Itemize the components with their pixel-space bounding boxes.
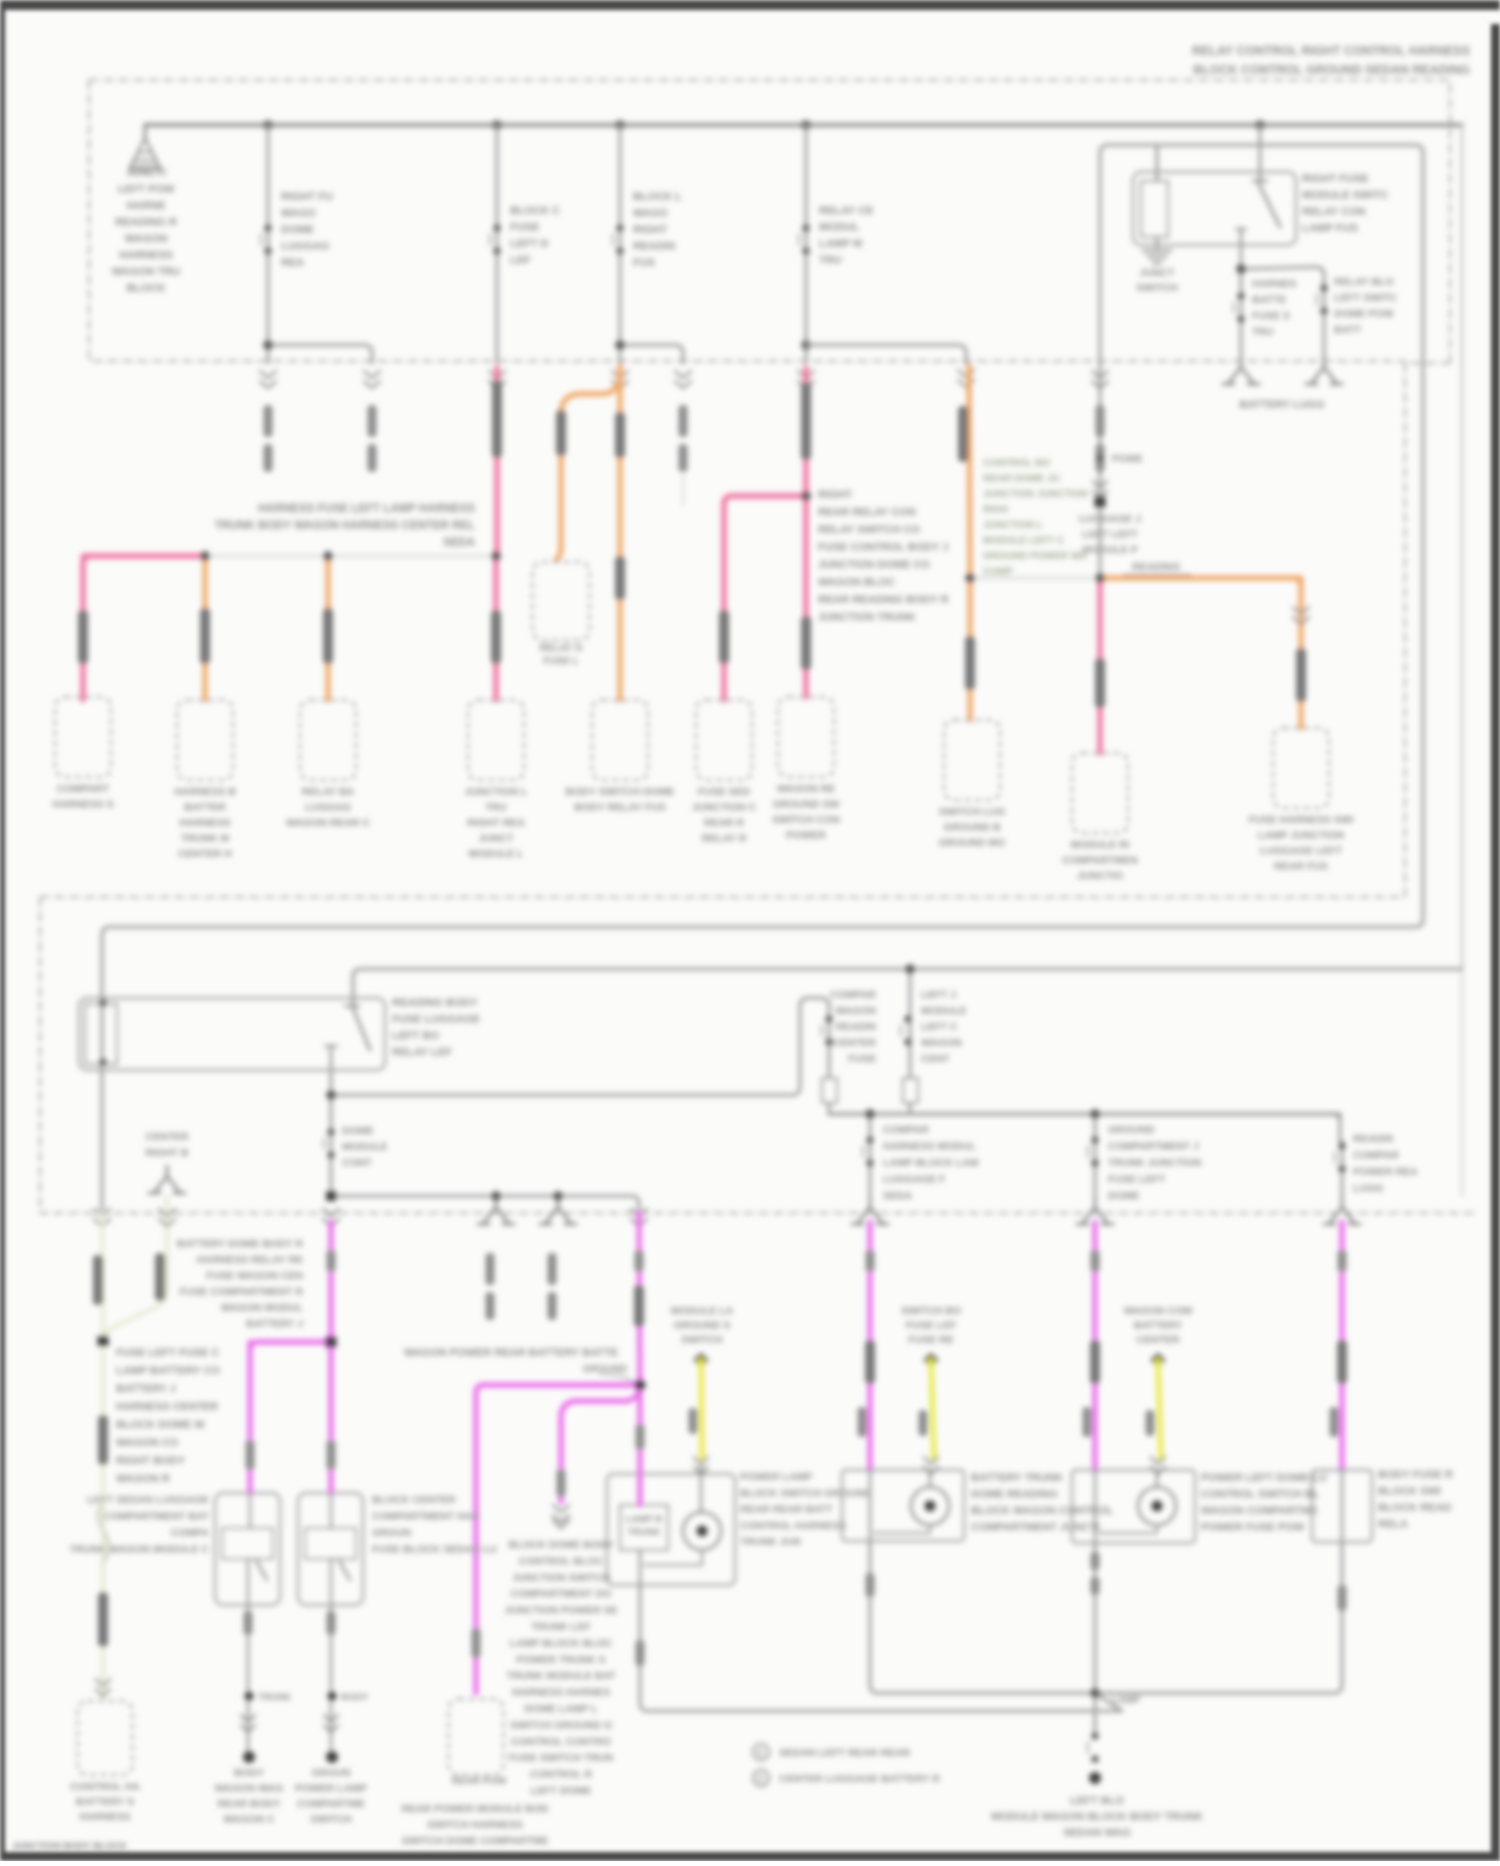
svg-text:COMPAR: COMPAR — [1353, 1150, 1399, 1162]
svg-text:COMPARTMENT BAT: COMPARTMENT BAT — [103, 1511, 209, 1523]
svg-text:LAMP B: LAMP B — [626, 1514, 662, 1525]
svg-text:HARNES: HARNES — [1252, 278, 1296, 290]
svg-text:MODULE RI: MODULE RI — [1071, 839, 1130, 851]
svg-text:SEDAN WAG: SEDAN WAG — [1063, 1827, 1131, 1839]
svg-text:BATTE: BATTE — [1252, 294, 1286, 306]
svg-text:SWITCH BO: SWITCH BO — [901, 1305, 961, 1317]
svg-text:JUNCTION L: JUNCTION L — [983, 520, 1043, 531]
svg-text:LAMP BATTERY CO: LAMP BATTERY CO — [116, 1365, 221, 1377]
svg-text:TRUNK JUNCTION: TRUNK JUNCTION — [1108, 1157, 1201, 1169]
svg-text:COMPA: COMPA — [171, 1527, 210, 1539]
svg-text:CENT: CENT — [921, 1053, 950, 1065]
svg-text:HARNESS HARNES: HARNESS HARNES — [512, 1687, 611, 1699]
svg-text:LEFT LEFT: LEFT LEFT — [1082, 529, 1138, 541]
svg-text:REAR POW: REAR POW — [452, 1776, 508, 1787]
svg-text:RELAY CON: RELAY CON — [1302, 206, 1366, 218]
svg-text:CONTROL HA: CONTROL HA — [70, 1781, 140, 1793]
svg-text:BATTERY J: BATTERY J — [246, 1318, 303, 1330]
svg-text:BODY RELAY FUS: BODY RELAY FUS — [574, 802, 665, 814]
svg-text:REAR READING BODY R: REAR READING BODY R — [818, 594, 949, 606]
svg-text:REAR REAR BATT: REAR REAR BATT — [740, 1504, 833, 1516]
svg-text:BATTERY TRUNK: BATTERY TRUNK — [971, 1472, 1063, 1484]
svg-text:SWITCH DOME COMPARTME: SWITCH DOME COMPARTME — [402, 1835, 549, 1847]
svg-text:WAGON: WAGON — [125, 233, 168, 245]
svg-text:HARNESS CENTER: HARNESS CENTER — [116, 1401, 218, 1413]
svg-text:RELAY LEF: RELAY LEF — [392, 1047, 452, 1059]
svg-text:HARNESS: HARNESS — [119, 250, 173, 262]
svg-text:BLOCK SWI: BLOCK SWI — [1378, 1486, 1441, 1498]
svg-text:COMP: COMP — [983, 567, 1013, 578]
svg-text:FUSE SWITCH TRUN: FUSE SWITCH TRUN — [509, 1752, 613, 1764]
svg-text:JUNCTIO: JUNCTIO — [1077, 870, 1123, 882]
svg-text:SWITCH CON: SWITCH CON — [772, 814, 840, 826]
svg-text:LEFT BLO: LEFT BLO — [1070, 1795, 1124, 1807]
svg-text:HARNESS MODUL: HARNESS MODUL — [883, 1141, 976, 1153]
svg-text:SEDAN LEFT REAR REAR: SEDAN LEFT REAR REAR — [779, 1747, 911, 1759]
svg-text:COMPART: COMPART — [57, 783, 110, 795]
svg-text:BATTERY: BATTERY — [1134, 1320, 1182, 1332]
svg-text:SWITCH GROUND G: SWITCH GROUND G — [510, 1719, 612, 1731]
svg-text:POWER LAMP: POWER LAMP — [295, 1783, 367, 1795]
svg-text:LUGGAG: LUGGAG — [281, 241, 329, 253]
svg-text:DOME: DOME — [1108, 1190, 1140, 1202]
svg-text:CENTER: CENTER — [145, 1131, 189, 1143]
svg-text:READIN: READIN — [836, 1021, 876, 1033]
svg-text:TRUNK LEF: TRUNK LEF — [531, 1621, 591, 1633]
svg-text:BLOCK READ: BLOCK READ — [1378, 1502, 1451, 1514]
svg-text:BATTERY J: BATTERY J — [116, 1383, 176, 1395]
svg-text:LAMP BLOCK BLOC: LAMP BLOCK BLOC — [510, 1637, 613, 1649]
svg-text:COMPAR: COMPAR — [883, 1124, 929, 1136]
svg-text:FUSE CONTROL BODY J: FUSE CONTROL BODY J — [818, 542, 948, 554]
svg-text:SWITCH: SWITCH — [1136, 282, 1177, 294]
svg-text:FUSE BLOCK SEDAN LU: FUSE BLOCK SEDAN LU — [372, 1544, 497, 1556]
svg-text:POWE: POWE — [1112, 454, 1143, 465]
svg-text:DOME LAMP L: DOME LAMP L — [524, 1703, 598, 1715]
svg-text:WAGON C: WAGON C — [223, 1814, 275, 1826]
svg-text:LUGGAG: LUGGAG — [305, 802, 351, 814]
svg-text:GROUND B: GROUND B — [943, 822, 1001, 834]
svg-text:MODULE WAGON BLOCK BODY TRUNK: MODULE WAGON BLOCK BODY TRUNK — [991, 1811, 1203, 1823]
svg-text:RELAY G: RELAY G — [539, 643, 583, 654]
svg-text:TRUNK MODULE BAT: TRUNK MODULE BAT — [507, 1670, 616, 1682]
svg-text:POWER TRUNK S: POWER TRUNK S — [516, 1654, 605, 1666]
svg-text:TRUNK WAGON MODULE C: TRUNK WAGON MODULE C — [70, 1544, 210, 1556]
svg-text:BLOCK CONTROL GROUND SEDAN REA: BLOCK CONTROL GROUND SEDAN READING — [1193, 63, 1470, 77]
svg-text:WAGON COM: WAGON COM — [1124, 1305, 1192, 1317]
svg-text:HARNE: HARNE — [126, 200, 165, 212]
svg-text:LEFT POW: LEFT POW — [118, 184, 175, 196]
svg-text:TRU: TRU — [1252, 326, 1274, 338]
svg-text:CONTROL SWITCH BL: CONTROL SWITCH BL — [1201, 1489, 1320, 1501]
svg-text:RIGHT FUSE: RIGHT FUSE — [1302, 173, 1369, 185]
svg-text:JUNCTION DOME CO: JUNCTION DOME CO — [818, 559, 930, 571]
svg-text:TRUNK: TRUNK — [258, 1692, 291, 1703]
svg-text:READING BODY: READING BODY — [392, 997, 478, 1009]
svg-text:REAR POWER MODULE BOD: REAR POWER MODULE BOD — [402, 1803, 549, 1815]
svg-text:LEF: LEF — [510, 255, 531, 267]
svg-text:LAMP FUS: LAMP FUS — [1302, 223, 1358, 235]
svg-text:BLOCK L: BLOCK L — [633, 191, 682, 203]
svg-text:BATTERY DOME BODY R: BATTERY DOME BODY R — [177, 1238, 304, 1250]
svg-text:CENTER: CENTER — [833, 1037, 877, 1049]
svg-text:WAGON R: WAGON R — [116, 1473, 170, 1485]
svg-text:COMPARTMEN: COMPARTMEN — [1062, 855, 1138, 867]
svg-text:GROUND S: GROUND S — [674, 1320, 731, 1332]
svg-text:COMPARTMENT JUNCTI: COMPARTMENT JUNCTI — [971, 1522, 1100, 1534]
svg-text:BLOCK C: BLOCK C — [510, 205, 560, 217]
svg-text:JUNCTION TRUNK: JUNCTION TRUNK — [818, 612, 916, 624]
svg-text:LEFT DOME: LEFT DOME — [531, 1785, 592, 1797]
svg-text:POWER LAMP: POWER LAMP — [740, 1471, 812, 1483]
svg-text:COMPARTMENT DO: COMPARTMENT DO — [511, 1588, 612, 1600]
svg-text:JUNCTION BODY BLOCK: JUNCTION BODY BLOCK — [12, 1841, 127, 1852]
svg-text:READIN: READIN — [1353, 1133, 1393, 1145]
svg-text:LEFT BO: LEFT BO — [392, 1030, 439, 1042]
svg-text:MODULE: MODULE — [921, 1005, 967, 1017]
svg-text:GROUND SW: GROUND SW — [773, 799, 840, 811]
svg-text:JUNCTION JUNCTION: JUNCTION JUNCTION — [983, 489, 1088, 500]
svg-text:REAR RELAY CON: REAR RELAY CON — [818, 507, 916, 519]
svg-text:WAGON REAR C: WAGON REAR C — [286, 817, 370, 829]
svg-text:BLOCK WAGON CONTROL: BLOCK WAGON CONTROL — [971, 1505, 1114, 1517]
svg-text:RELAY SWITCH CO: RELAY SWITCH CO — [818, 524, 921, 536]
svg-text:SEDA: SEDA — [443, 537, 475, 549]
svg-text:MODUL: MODUL — [819, 222, 860, 234]
svg-text:RIGHT REA: RIGHT REA — [467, 817, 525, 829]
svg-text:LAMP JUNCTION: LAMP JUNCTION — [1258, 830, 1344, 842]
svg-text:HARNESS: HARNESS — [79, 1811, 130, 1823]
svg-text:FUSE: FUSE — [848, 1053, 876, 1065]
svg-text:JUNCT: JUNCT — [478, 833, 514, 845]
svg-text:JUNCTION C: JUNCTION C — [692, 802, 757, 814]
svg-text:BODY FUSE R: BODY FUSE R — [1378, 1469, 1453, 1481]
svg-text:RIGH: RIGH — [983, 505, 1008, 516]
svg-text:READING: READING — [1132, 561, 1180, 573]
svg-text:RELAY CE: RELAY CE — [819, 205, 873, 217]
svg-text:DOME READING: DOME READING — [971, 1489, 1058, 1501]
svg-text:CENTER: CENTER — [1136, 1334, 1180, 1346]
svg-text:WAGON: WAGON — [835, 1005, 876, 1017]
svg-text:WAGON BLOC: WAGON BLOC — [818, 577, 895, 589]
svg-text:CENTER LUGGAGE BATTERY R: CENTER LUGGAGE BATTERY R — [779, 1773, 940, 1785]
svg-text:LEFT SEDAN LUGGAGE: LEFT SEDAN LUGGAGE — [87, 1494, 209, 1506]
svg-text:JUNCT: JUNCT — [1139, 267, 1175, 279]
svg-text:FUSE LEFT: FUSE LEFT — [1108, 1174, 1166, 1186]
svg-text:GROUND: GROUND — [1108, 1124, 1155, 1136]
svg-text:FUSE COMPARTMENT R: FUSE COMPARTMENT R — [180, 1286, 304, 1298]
svg-text:REA: REA — [281, 257, 304, 269]
svg-text:WAGON CO: WAGON CO — [116, 1437, 179, 1449]
svg-text:MODULE L: MODULE L — [469, 848, 524, 860]
svg-text:CENTER H: CENTER H — [178, 848, 232, 860]
svg-text:POWER: POWER — [786, 830, 826, 842]
svg-text:DOME: DOME — [342, 1125, 374, 1137]
svg-text:GROUND POWER WA: GROUND POWER WA — [983, 551, 1087, 562]
svg-text:TRUNK BODY WAGON HARNESS CENTE: TRUNK BODY WAGON HARNESS CENTER REL — [215, 520, 475, 532]
svg-text:FUSE S: FUSE S — [1252, 310, 1290, 322]
svg-text:BODY: BODY — [341, 1692, 369, 1703]
svg-text:TRU: TRU — [485, 802, 507, 814]
svg-text:BODY: BODY — [234, 1767, 264, 1779]
svg-text:HARNESS FUSE LEFT LAMP HARNESS: HARNESS FUSE LEFT LAMP HARNESS — [258, 503, 475, 515]
svg-text:RELAY R: RELAY R — [702, 833, 747, 845]
svg-text:WAGON RE: WAGON RE — [777, 783, 835, 795]
svg-text:BODY SWITCH DOME: BODY SWITCH DOME — [566, 786, 675, 798]
svg-text:JUNCTION L: JUNCTION L — [465, 786, 529, 798]
svg-text:LUGGAGE J: LUGGAGE J — [1079, 513, 1141, 525]
svg-text:POWER FUSE POW: POWER FUSE POW — [1201, 1522, 1305, 1534]
svg-text:TRUNK JUN: TRUNK JUN — [740, 1536, 801, 1548]
svg-text:WAGON WAG: WAGON WAG — [215, 1783, 284, 1795]
svg-text:GROUN: GROUN — [372, 1527, 411, 1539]
svg-text:COMPARTMENT J: COMPARTMENT J — [1108, 1141, 1199, 1153]
svg-text:GROUND MO: GROUND MO — [939, 837, 1006, 849]
svg-text:REAR R: REAR R — [704, 817, 745, 829]
svg-text:BATT: BATT — [1334, 324, 1362, 336]
svg-text:FUSE L: FUSE L — [543, 656, 579, 667]
svg-text:BLOCK CENTER: BLOCK CENTER — [372, 1494, 456, 1506]
svg-text:CONTROL HARNESS: CONTROL HARNESS — [740, 1520, 846, 1532]
svg-text:WAGO: WAGO — [281, 208, 316, 220]
svg-text:HARNESS B: HARNESS B — [174, 786, 236, 798]
svg-text:C: C — [757, 1774, 764, 1785]
svg-text:FUSE LEF: FUSE LEF — [906, 1320, 957, 1332]
svg-text:REAR FUS: REAR FUS — [1274, 861, 1328, 873]
svg-text:SWITCH: SWITCH — [310, 1814, 351, 1826]
svg-text:SWITCH: SWITCH — [681, 1334, 722, 1346]
svg-text:RIGHT: RIGHT — [633, 224, 668, 236]
svg-text:BLOCK DOME BODY: BLOCK DOME BODY — [509, 1539, 614, 1551]
svg-text:HARNESS: HARNESS — [179, 817, 230, 829]
svg-text:JUNCTION SWITCH: JUNCTION SWITCH — [512, 1572, 610, 1584]
svg-text:READING R: READING R — [115, 217, 177, 229]
svg-text:FUSE HARNESS SWI: FUSE HARNESS SWI — [1248, 814, 1353, 826]
svg-text:SWITCH HARNESS: SWITCH HARNESS — [427, 1819, 523, 1831]
svg-text:CONTROL BO: CONTROL BO — [983, 458, 1050, 469]
svg-text:RIGHT B: RIGHT B — [145, 1147, 189, 1159]
svg-text:BATTERY S: BATTERY S — [76, 1796, 134, 1808]
svg-text:SWITCH LUG: SWITCH LUG — [939, 806, 1006, 818]
svg-text:LUGGAGE F: LUGGAGE F — [883, 1174, 946, 1186]
svg-text:CONTROL R: CONTROL R — [530, 1769, 593, 1781]
svg-text:BLOCK DOME W: BLOCK DOME W — [116, 1419, 205, 1431]
svg-text:MODULE P: MODULE P — [1082, 544, 1137, 556]
svg-text:LEFT D: LEFT D — [510, 238, 549, 250]
svg-text:REAR DOME JU: REAR DOME JU — [983, 474, 1060, 485]
svg-text:LEFT J: LEFT J — [921, 989, 956, 1001]
svg-text:COMPARTMENT HAR: COMPARTMENT HAR — [372, 1511, 480, 1523]
svg-text:WAGON COMPARTME: WAGON COMPARTME — [1201, 1505, 1318, 1517]
svg-text:RIGHT FU: RIGHT FU — [281, 191, 333, 203]
svg-text:RELAY BLO: RELAY BLO — [1334, 276, 1394, 288]
svg-text:SEDA: SEDA — [883, 1190, 913, 1202]
svg-text:TRUNK: TRUNK — [627, 1527, 660, 1538]
svg-text:READIN: READIN — [633, 241, 675, 253]
svg-text:JUNCTION POWER SE: JUNCTION POWER SE — [504, 1605, 617, 1617]
svg-text:FUSE RE: FUSE RE — [908, 1334, 954, 1346]
svg-text:BATTER: BATTER — [184, 802, 226, 814]
svg-text:LUGG: LUGG — [1353, 1183, 1383, 1195]
svg-text:BLOCK: BLOCK — [126, 283, 165, 295]
svg-text:LAMP: LAMP — [1112, 1695, 1141, 1706]
svg-text:RIGHT: RIGHT — [818, 489, 853, 501]
svg-text:LEFT SWITC: LEFT SWITC — [1334, 292, 1397, 304]
svg-text:RELAY BA: RELAY BA — [302, 786, 355, 798]
svg-text:FUSE LEFT FUSE C: FUSE LEFT FUSE C — [116, 1347, 219, 1359]
svg-text:JUNCTI: JUNCTI — [126, 167, 166, 179]
svg-text:C: C — [757, 1748, 764, 1759]
svg-text:FUSE SED: FUSE SED — [698, 786, 751, 798]
svg-text:MODULE LEFT C: MODULE LEFT C — [983, 536, 1064, 547]
svg-text:FUS: FUS — [633, 257, 655, 269]
svg-text:DOME POW: DOME POW — [1334, 308, 1394, 320]
svg-text:WAGO: WAGO — [633, 208, 668, 220]
svg-text:DOME: DOME — [281, 224, 314, 236]
svg-text:POWER LEFT DOME LU: POWER LEFT DOME LU — [1201, 1472, 1327, 1484]
svg-text:CONTROL CONTRO: CONTROL CONTRO — [511, 1736, 611, 1748]
svg-text:LEFT C: LEFT C — [921, 1021, 958, 1033]
svg-text:COMPAR: COMPAR — [830, 989, 876, 1001]
svg-text:LAMP M: LAMP M — [819, 238, 862, 250]
svg-text:MODULE SWITC: MODULE SWITC — [1302, 190, 1388, 202]
svg-text:RELA: RELA — [1378, 1519, 1408, 1531]
svg-text:HARNESS RELAY RE: HARNESS RELAY RE — [197, 1254, 303, 1266]
svg-text:FUSE LUGGAGE: FUSE LUGGAGE — [392, 1014, 480, 1026]
svg-text:BLOCK SWITCH GROUND: BLOCK SWITCH GROUND — [740, 1487, 872, 1499]
svg-text:WAGON MODUL: WAGON MODUL — [221, 1302, 304, 1314]
svg-text:POWER REA: POWER REA — [1353, 1166, 1418, 1178]
svg-text:LAMP BLOCK LAM: LAMP BLOCK LAM — [883, 1157, 979, 1169]
svg-text:BATTERY LUGG: BATTERY LUGG — [1239, 399, 1324, 411]
svg-text:GROUN: GROUN — [311, 1767, 350, 1779]
svg-text:HARNESS S: HARNESS S — [52, 799, 113, 811]
svg-text:MODULE LA: MODULE LA — [671, 1305, 734, 1317]
svg-text:MODULE: MODULE — [342, 1141, 388, 1153]
svg-text:RIGHT BODY: RIGHT BODY — [116, 1455, 186, 1467]
svg-text:WAGON POWER REAR BATTERY BATTE: WAGON POWER REAR BATTERY BATTE — [404, 1347, 618, 1359]
svg-text:COMPARTME: COMPARTME — [297, 1798, 365, 1810]
svg-text:WAGON TRU: WAGON TRU — [112, 266, 180, 278]
svg-text:LUGGAGE LEFT: LUGGAGE LEFT — [1260, 845, 1343, 857]
svg-text:TRUNK M: TRUNK M — [181, 833, 230, 845]
svg-text:RELAY CONTROL RIGHT CONTROL HA: RELAY CONTROL RIGHT CONTROL HARNESS — [1192, 44, 1470, 58]
svg-text:REAR BODY: REAR BODY — [217, 1798, 280, 1810]
svg-text:CONT: CONT — [342, 1157, 372, 1169]
svg-text:WAGON: WAGON — [921, 1037, 962, 1049]
svg-text:TRU: TRU — [819, 255, 842, 267]
svg-text:CONTROL BLOC: CONTROL BLOC — [519, 1555, 604, 1567]
svg-text:FUSE: FUSE — [510, 222, 539, 234]
svg-text:FUSE WAGON CEN: FUSE WAGON CEN — [206, 1270, 303, 1282]
